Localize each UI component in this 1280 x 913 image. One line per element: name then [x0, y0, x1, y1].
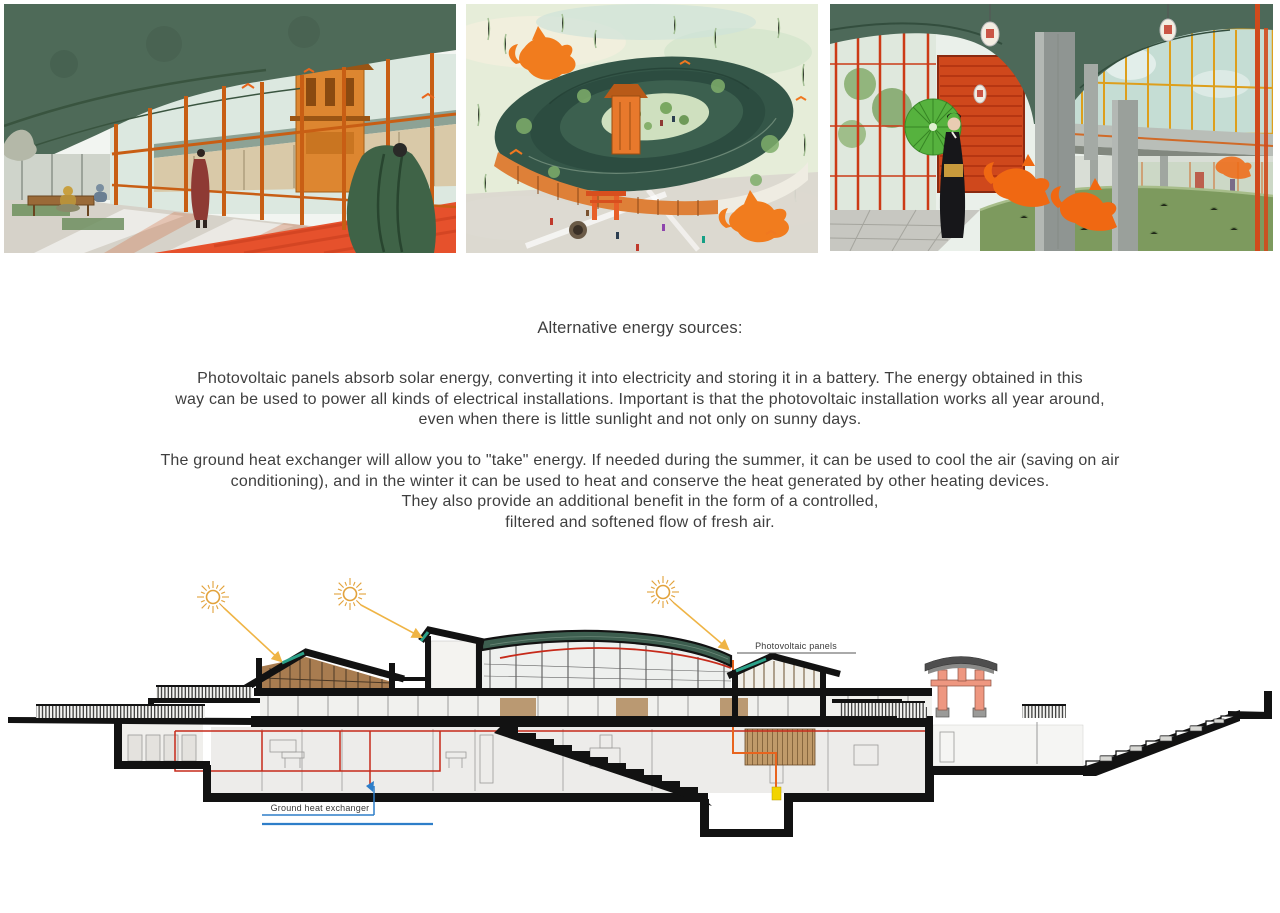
- paragraph-line: conditioning), and in the winter it can …: [70, 472, 1210, 493]
- paragraph-line: even when there is little sunlight and n…: [70, 410, 1210, 431]
- rendering-aerial-image: [466, 4, 818, 253]
- photovoltaic-label: Photovoltaic panels: [737, 641, 856, 653]
- paragraph-line: The ground heat exchanger will allow you…: [70, 451, 1210, 472]
- paragraph-line: Photovoltaic panels absorb solar energy,…: [70, 369, 1210, 390]
- photovoltaic-label-text: Photovoltaic panels: [755, 641, 837, 651]
- basement-wood-room: [745, 729, 815, 765]
- paragraph-line: way can be used to power all kinds of el…: [70, 390, 1210, 411]
- torii-gate: [925, 657, 997, 718]
- rendering-aerial-illustration: [466, 4, 818, 253]
- paragraph-line: They also provide an additional benefit …: [70, 492, 1210, 513]
- rendering-interior-illustration: [4, 4, 456, 253]
- rendering-interior-image: [4, 4, 456, 253]
- paragraph-line: filtered and softened flow of fresh air.: [70, 513, 1210, 534]
- rendering-undercroft-illustration: [830, 4, 1273, 251]
- building-section-diagram: Photovoltaic panels Ground heat exchange…: [0, 555, 1280, 855]
- paragraph-photovoltaic: Photovoltaic panels absorb solar energy,…: [70, 369, 1210, 431]
- presentation-board: Alternative energy sources: Photovoltaic…: [0, 0, 1280, 913]
- section-title: Alternative energy sources:: [70, 318, 1210, 339]
- sun-icons: [197, 576, 679, 613]
- ground-heat-label-text: Ground heat exchanger: [271, 803, 370, 813]
- rendering-undercroft-image: [830, 4, 1273, 251]
- paragraph-ground-heat: The ground heat exchanger will allow you…: [70, 451, 1210, 533]
